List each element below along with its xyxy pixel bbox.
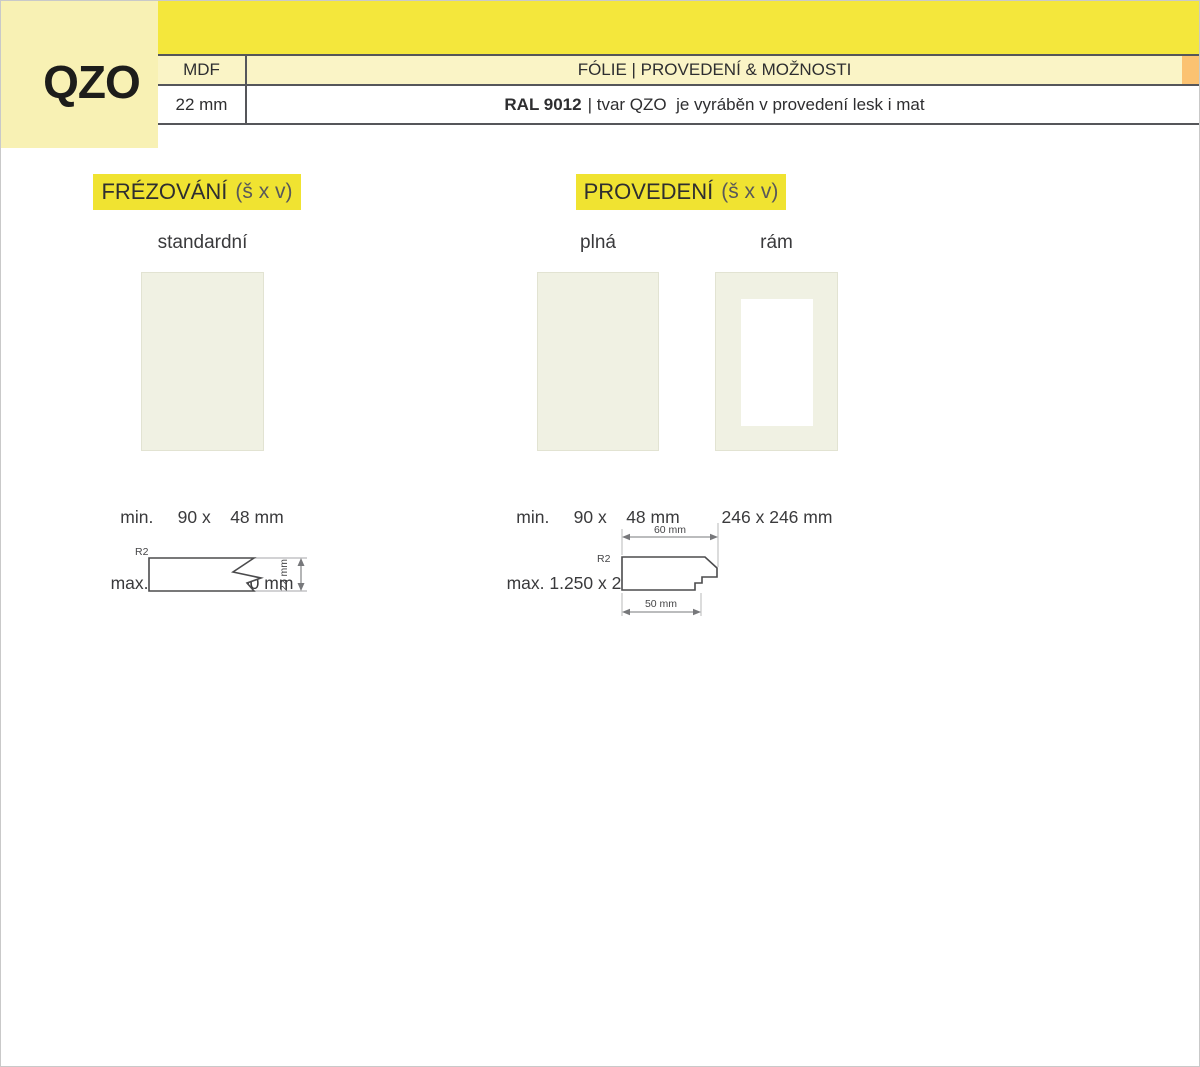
section-title-text: FRÉZOVÁNÍ — [101, 179, 227, 205]
radius-label: R2 — [135, 546, 149, 558]
accent-block — [1182, 56, 1200, 84]
swatch-plna — [537, 272, 659, 451]
swatch-ram-window — [741, 299, 813, 426]
section-title-suffix: (š x v) — [721, 180, 778, 204]
radius-label: R2 — [597, 553, 611, 565]
thickness-cell: 22 mm — [158, 86, 247, 123]
top-band — [158, 1, 1200, 54]
arrowhead-up — [298, 558, 305, 566]
product-code: QZO — [43, 59, 140, 105]
section-title-text: PROVEDENÍ — [584, 179, 714, 205]
spec-table: MDF FÓLIE | PROVEDENÍ & MOŽNOSTI 22 mm R… — [158, 54, 1200, 125]
catalog-page: QZO MDF FÓLIE | PROVEDENÍ & MOŽNOSTI 22 … — [0, 0, 1200, 1067]
material-cell: MDF — [158, 56, 247, 84]
width-bottom-label: 50 mm — [645, 598, 677, 610]
header-title-cell: FÓLIE | PROVEDENÍ & MOŽNOSTI — [247, 56, 1200, 84]
arrowhead-right-top — [710, 534, 718, 540]
section-title-suffix: (š x v) — [235, 180, 292, 204]
arrowhead-left-bottom — [622, 609, 630, 615]
section-title-provedeni: PROVEDENÍ (š x v) — [576, 174, 786, 210]
profile-outline — [149, 558, 261, 591]
material-label: MDF — [183, 60, 220, 80]
product-code-box: QZO — [1, 1, 158, 148]
thickness-value: 22 mm — [176, 95, 228, 115]
finish-cell: RAL 9012 | tvar QZO je vyráběn v provede… — [247, 86, 1200, 123]
spec-header-row: MDF FÓLIE | PROVEDENÍ & MOŽNOSTI — [158, 56, 1200, 86]
variant-label-plna: plná — [537, 231, 659, 255]
profile-drawing-standard: R2 22 mm — [121, 539, 321, 609]
profile-drawing-frame: 60 mm R2 50 mm — [586, 519, 736, 619]
section-title-frezovani: FRÉZOVÁNÍ (š x v) — [93, 174, 301, 210]
finish-description: | tvar QZO je vyráběn v provedení lesk i… — [588, 95, 925, 115]
profile-outline — [622, 557, 717, 590]
arrowhead-down — [298, 583, 305, 591]
arrowhead-left-top — [622, 534, 630, 540]
finish-code: RAL 9012 — [504, 95, 581, 115]
dims-line-min: min. 90 x 48 mm — [92, 506, 312, 528]
height-dimension-label: 22 mm — [278, 559, 290, 591]
swatch-ram — [715, 272, 838, 451]
header-title: FÓLIE | PROVEDENÍ & MOŽNOSTI — [578, 60, 852, 80]
arrowhead-right-bottom — [693, 609, 701, 615]
variant-label-standardni: standardní — [141, 231, 264, 255]
swatch-standardni — [141, 272, 264, 451]
spec-value-row: 22 mm RAL 9012 | tvar QZO je vyráběn v p… — [158, 86, 1200, 123]
width-top-label: 60 mm — [654, 524, 686, 536]
variant-label-ram: rám — [715, 231, 838, 255]
